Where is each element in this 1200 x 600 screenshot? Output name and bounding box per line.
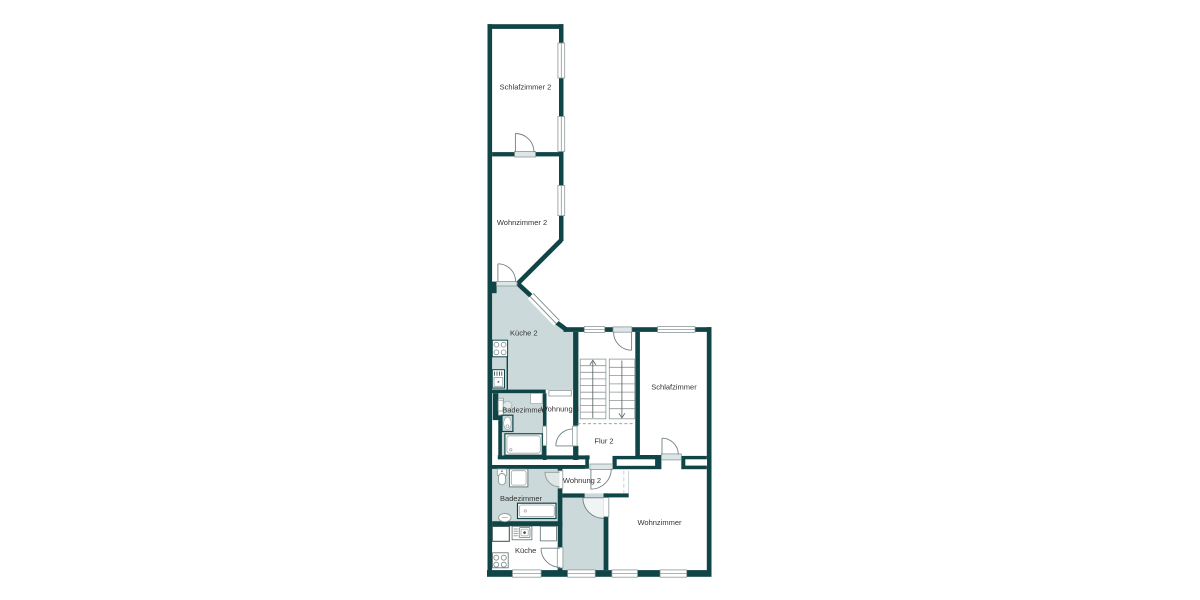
svg-text:Wohnzimmer 2: Wohnzimmer 2 <box>497 218 547 227</box>
svg-text:Flur 2: Flur 2 <box>594 437 613 446</box>
svg-text:Schlafzimmer: Schlafzimmer <box>651 383 697 392</box>
svg-text:Wohnzimmer: Wohnzimmer <box>637 518 682 527</box>
svg-text:Küche 2: Küche 2 <box>510 329 538 338</box>
svg-text:Schlafzimmer 2: Schlafzimmer 2 <box>500 83 552 92</box>
svg-text:Wohnung 2: Wohnung 2 <box>563 476 601 485</box>
svg-text:Wohnung 3: Wohnung 3 <box>541 404 579 413</box>
svg-text:Badezimmer: Badezimmer <box>502 406 545 415</box>
svg-text:Badezimmer: Badezimmer <box>500 494 543 503</box>
svg-text:Küche: Küche <box>515 546 536 555</box>
